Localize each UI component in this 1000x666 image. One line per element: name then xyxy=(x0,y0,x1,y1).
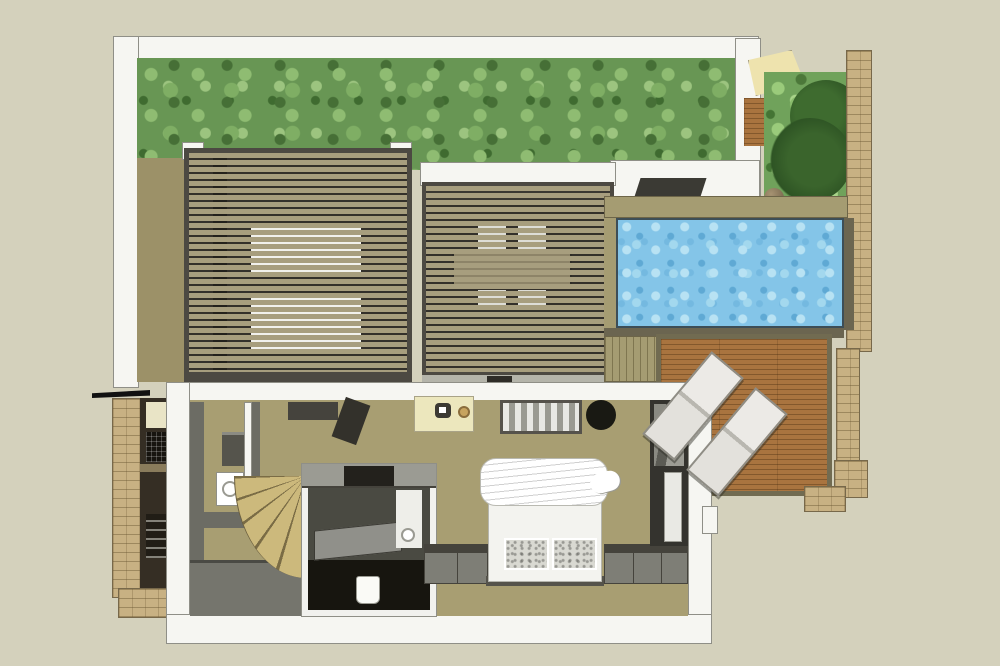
closet-brick-wall xyxy=(112,398,142,598)
pillow-right xyxy=(552,538,597,570)
exterior-step xyxy=(702,506,718,534)
wardrobe-door xyxy=(664,472,682,542)
swimming-pool xyxy=(616,218,844,328)
bathroom-pod xyxy=(302,464,436,616)
pool-edge-shadow xyxy=(844,218,854,330)
cabinet-left xyxy=(424,544,488,584)
round-pouf xyxy=(586,400,616,430)
pergola-mid-slats xyxy=(426,186,610,382)
cabinet-seam xyxy=(633,553,634,583)
roof-parapet-left xyxy=(113,36,139,388)
desk-device xyxy=(435,403,451,418)
floor-plan-render xyxy=(0,0,1000,666)
roof-terrace-ground-strip xyxy=(137,158,187,382)
desk-device-screen xyxy=(439,407,446,413)
stone-wall-lower xyxy=(836,348,860,474)
desk-bowl xyxy=(458,406,470,418)
side-table xyxy=(288,402,338,420)
shrub-bottom xyxy=(768,118,852,202)
pod-shelf xyxy=(314,521,402,560)
desk xyxy=(414,396,474,432)
wall-south xyxy=(166,614,712,644)
cabinet-seam xyxy=(457,553,458,583)
cabinet-right xyxy=(604,544,688,584)
pool-coping-top xyxy=(604,196,848,218)
bench-daybed xyxy=(500,400,582,434)
pergola-left-slats xyxy=(189,153,407,381)
pillow-left xyxy=(504,538,549,570)
pergola-left xyxy=(184,148,412,386)
pergola-middle xyxy=(422,182,614,386)
cabinet-seam xyxy=(661,553,662,583)
pod-wc-unit xyxy=(396,490,422,548)
duvet-roll xyxy=(480,458,608,506)
deck-stone-base xyxy=(804,486,846,512)
awning-rod xyxy=(92,390,150,398)
pod-cylinder xyxy=(356,576,380,604)
pod-basin xyxy=(401,528,415,542)
wall-west xyxy=(166,382,190,644)
pod-roof-hatch xyxy=(344,466,394,486)
walkway-planks xyxy=(604,336,660,382)
